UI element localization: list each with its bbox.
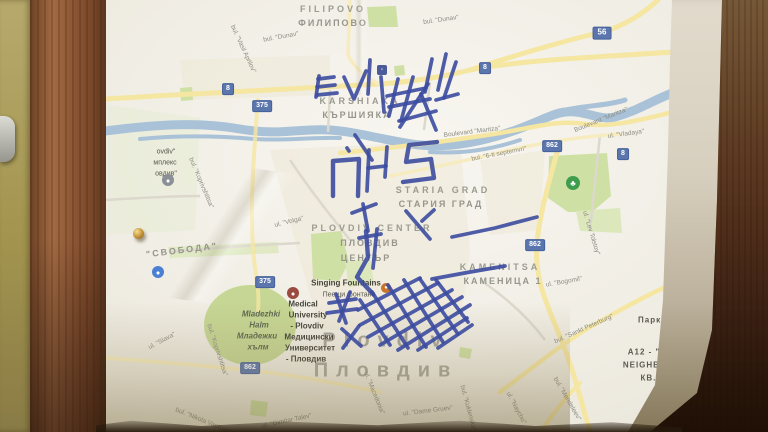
wall-left	[0, 0, 32, 432]
marker-stroke	[357, 231, 373, 294]
marker-stroke	[425, 59, 432, 92]
marker-stroke	[368, 166, 386, 168]
marker-stroke	[329, 299, 356, 303]
marker-stroke	[347, 148, 349, 151]
marker-stroke	[367, 150, 369, 191]
marker-stroke	[403, 142, 437, 182]
marker-stroke	[343, 326, 359, 348]
paper-map: FILIPOVOФИЛИПОВОKARSHIAKAКЪРШИЯКАSTARIA …	[0, 0, 768, 432]
marker-stroke	[422, 210, 434, 221]
marker-stroke	[389, 79, 398, 116]
marker-stroke	[381, 77, 384, 112]
metal-bracket	[0, 116, 15, 162]
marker-stroke	[333, 159, 359, 196]
marker-stroke	[444, 62, 456, 98]
marker-stroke	[344, 71, 366, 99]
marker-stroke	[438, 54, 446, 90]
marker-stroke	[436, 94, 458, 100]
photo-of-wall-map: FILIPOVOФИЛИПОВОKARSHIAKAКЪРШИЯКАSTARIA …	[0, 0, 768, 432]
marker-stroke	[385, 147, 387, 177]
marker-stroke	[452, 217, 537, 237]
marker-stroke	[317, 93, 337, 95]
pushpin	[133, 228, 144, 239]
marker-annotations	[0, 0, 768, 432]
marker-stroke	[368, 60, 370, 94]
marker-stroke	[317, 85, 335, 87]
marker-stroke	[432, 266, 505, 279]
door-frame-left	[30, 0, 106, 432]
